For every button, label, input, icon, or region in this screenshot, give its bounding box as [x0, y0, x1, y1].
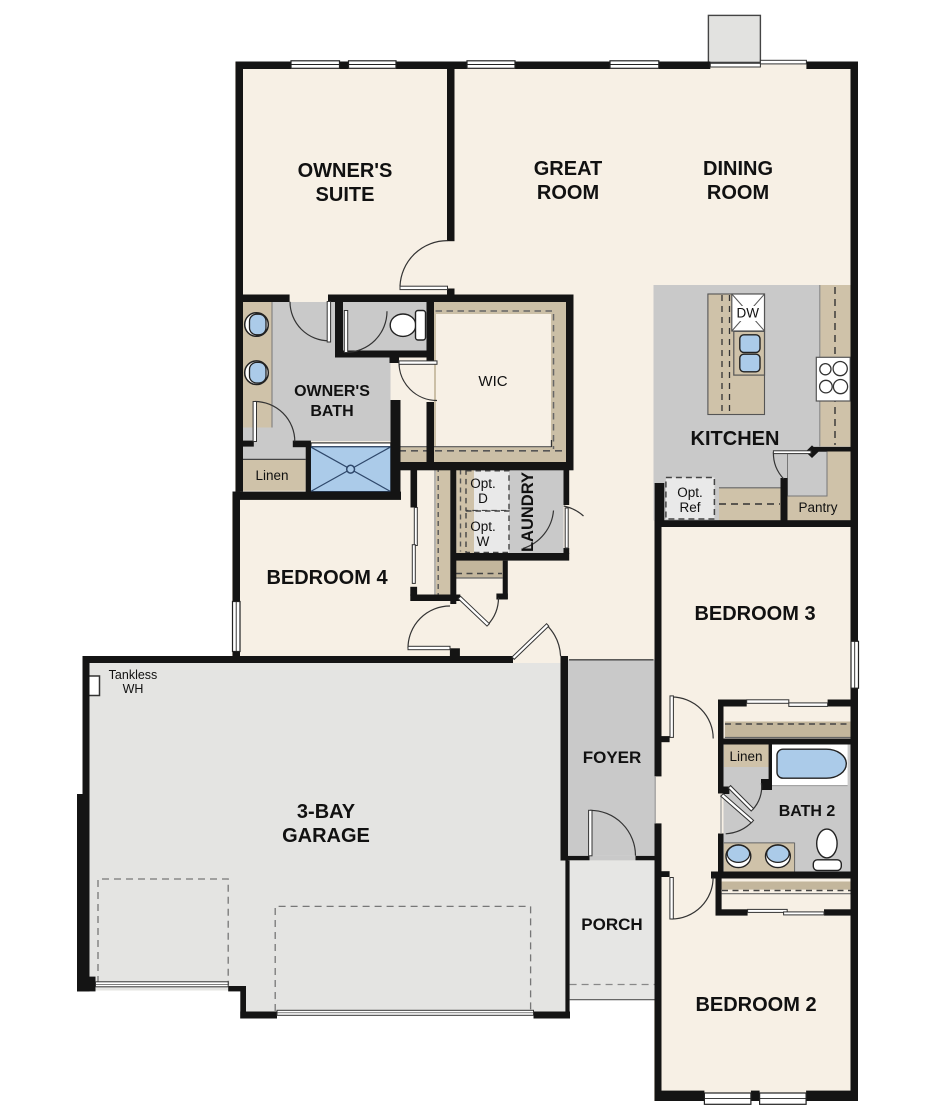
svg-text:BATH 2: BATH 2: [779, 803, 836, 820]
svg-text:DW: DW: [737, 306, 760, 321]
svg-text:Opt.: Opt.: [470, 476, 496, 491]
svg-text:ROOM: ROOM: [537, 182, 599, 204]
svg-text:Linen: Linen: [729, 749, 762, 764]
svg-text:OWNER'S: OWNER'S: [298, 160, 393, 182]
svg-text:DINING: DINING: [703, 158, 773, 180]
svg-text:SUITE: SUITE: [316, 184, 375, 206]
svg-text:LAUNDRY: LAUNDRY: [519, 472, 537, 552]
svg-text:GREAT: GREAT: [534, 158, 603, 180]
svg-text:Pantry: Pantry: [798, 500, 837, 515]
svg-text:WIC: WIC: [478, 373, 507, 390]
svg-text:BEDROOM 4: BEDROOM 4: [266, 567, 388, 589]
svg-text:BEDROOM 2: BEDROOM 2: [695, 994, 816, 1016]
svg-text:W: W: [477, 534, 490, 549]
svg-text:FOYER: FOYER: [583, 748, 642, 767]
svg-text:PORCH: PORCH: [581, 915, 642, 934]
svg-text:KITCHEN: KITCHEN: [691, 428, 780, 450]
svg-text:Opt.: Opt.: [677, 485, 703, 500]
svg-text:Tankless: Tankless: [109, 668, 158, 682]
svg-text:OWNER'S: OWNER'S: [294, 383, 370, 400]
svg-text:Linen: Linen: [255, 468, 288, 483]
svg-text:D: D: [478, 491, 488, 506]
svg-text:BATH: BATH: [310, 403, 353, 420]
svg-text:GARAGE: GARAGE: [282, 825, 370, 847]
svg-text:Opt.: Opt.: [470, 519, 496, 534]
svg-text:WH: WH: [123, 682, 144, 696]
svg-text:BEDROOM 3: BEDROOM 3: [694, 603, 815, 625]
svg-text:3-BAY: 3-BAY: [297, 801, 356, 823]
svg-text:ROOM: ROOM: [707, 182, 769, 204]
svg-text:Ref: Ref: [679, 500, 700, 515]
